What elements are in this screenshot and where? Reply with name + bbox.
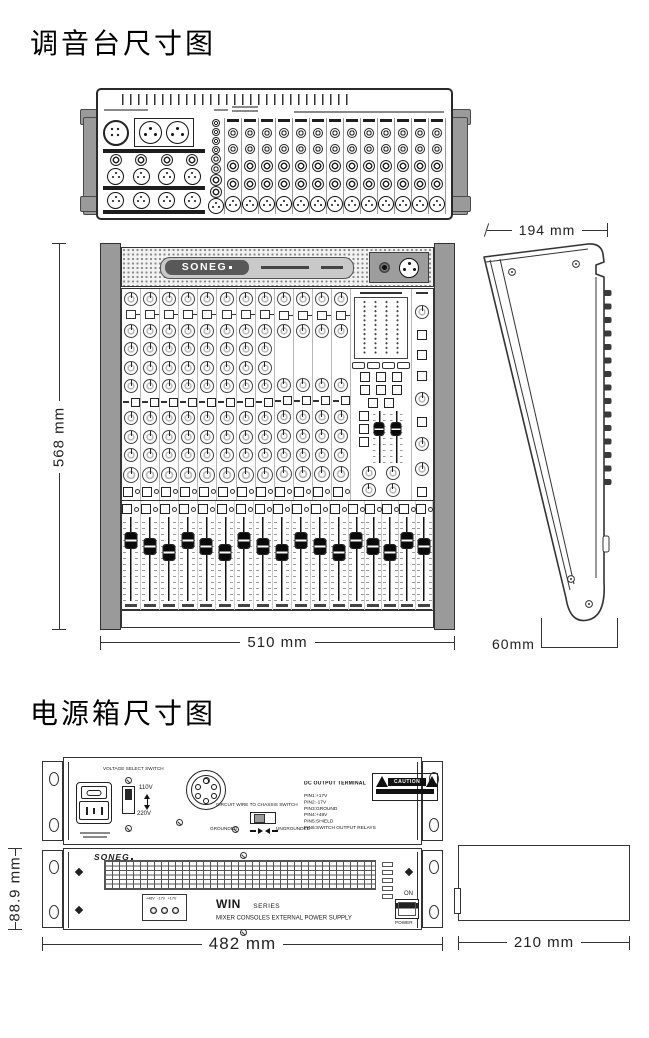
rear-connector-column bbox=[225, 118, 242, 214]
solo-led bbox=[153, 507, 158, 512]
fader-plate bbox=[122, 500, 433, 610]
mute-button bbox=[341, 396, 350, 405]
power-switch bbox=[395, 899, 419, 919]
knob-icon bbox=[199, 467, 215, 483]
pfl-button bbox=[275, 487, 285, 497]
solo-led bbox=[191, 507, 196, 512]
screw-icon bbox=[240, 852, 247, 859]
mute-button bbox=[169, 398, 178, 407]
knob-icon bbox=[362, 483, 376, 497]
dimension-psu-width: 482 mm bbox=[42, 934, 443, 954]
xlr-connector-icon bbox=[378, 196, 394, 212]
knob-icon bbox=[295, 466, 311, 482]
knob-icon bbox=[296, 292, 310, 306]
rear-connector-column bbox=[412, 118, 429, 214]
knob-icon bbox=[362, 466, 376, 480]
led-label-neg17v: -17V bbox=[157, 897, 165, 901]
jack-icon bbox=[432, 144, 442, 154]
jack-icon bbox=[381, 144, 391, 154]
xlr-connector-icon bbox=[276, 196, 292, 212]
figure-part bbox=[313, 400, 319, 402]
jack-icon bbox=[210, 186, 222, 198]
jack-icon bbox=[110, 154, 122, 166]
solo-led bbox=[323, 507, 328, 512]
knob-icon bbox=[334, 292, 348, 306]
knob-icon bbox=[239, 430, 253, 444]
knob-icon bbox=[315, 324, 329, 338]
peak-led bbox=[325, 489, 330, 494]
master-right-column bbox=[412, 289, 433, 500]
xlr-connector-icon bbox=[158, 192, 175, 209]
channel-fader bbox=[161, 517, 176, 601]
right-side-cheek bbox=[434, 243, 455, 630]
panel-edge-line bbox=[68, 762, 69, 840]
routing-button bbox=[360, 385, 370, 395]
knob-icon bbox=[220, 448, 234, 462]
rear-master-io-block bbox=[103, 118, 205, 214]
scribble-strip bbox=[418, 604, 430, 607]
knob-icon bbox=[143, 448, 157, 462]
pfl-row bbox=[218, 487, 235, 497]
figure-part bbox=[123, 401, 129, 403]
jack-icon bbox=[295, 178, 307, 190]
knob-icon bbox=[415, 392, 429, 406]
knob-icon bbox=[315, 410, 329, 424]
fader-cap bbox=[125, 533, 136, 548]
jack-icon bbox=[296, 144, 306, 154]
caution-text: CAUTION bbox=[388, 778, 426, 786]
knob-icon bbox=[124, 448, 138, 462]
jack-icon bbox=[415, 128, 425, 138]
rear-panel bbox=[96, 88, 453, 220]
led-label-48v: +48V bbox=[146, 897, 155, 901]
fader-cell bbox=[365, 501, 382, 610]
fader-cap bbox=[201, 539, 212, 554]
gain-pad-button bbox=[164, 310, 174, 319]
meter-button bbox=[367, 362, 380, 369]
knob-icon bbox=[161, 467, 177, 483]
knob-icon bbox=[200, 292, 214, 306]
pfl-button bbox=[199, 487, 209, 497]
fader-cap bbox=[163, 545, 174, 560]
knob-icon bbox=[296, 378, 310, 392]
solo-led bbox=[248, 507, 253, 512]
side-knob-bump bbox=[604, 290, 612, 296]
solo-button bbox=[217, 504, 227, 514]
knob-icon bbox=[162, 361, 176, 375]
fader-cell bbox=[273, 501, 292, 610]
dc-pin-list: PIN1:+17VPIN2:-17VPIN3:GROUNDPIN4:+48VPI… bbox=[304, 793, 376, 831]
knob-icon bbox=[143, 292, 157, 306]
knob-icon bbox=[124, 292, 138, 306]
gain-pad-button bbox=[145, 310, 155, 319]
pfl-button bbox=[333, 487, 343, 497]
psu-width-label: 482 mm bbox=[202, 934, 283, 954]
fader-cap bbox=[295, 533, 306, 548]
master-divider bbox=[360, 292, 402, 294]
assign-button bbox=[359, 424, 369, 434]
jack-icon bbox=[211, 164, 221, 174]
tray-dash bbox=[261, 266, 309, 269]
side-knob-bump bbox=[604, 317, 612, 323]
dimension-mixer-height: 568 mm bbox=[50, 243, 68, 630]
knob-icon bbox=[239, 411, 253, 425]
pfl-row bbox=[313, 487, 330, 497]
peak-led bbox=[211, 489, 216, 494]
chassis-switch-label: CIRCUIT WIRE TO CHASSIS SWITCH bbox=[216, 803, 298, 808]
fader-cap bbox=[385, 545, 396, 560]
solo-row bbox=[311, 504, 328, 514]
channel-strips bbox=[122, 289, 351, 500]
channel-fader bbox=[199, 517, 214, 601]
knob-icon bbox=[315, 448, 329, 462]
power-on-label: ON bbox=[404, 891, 413, 897]
xlr-connector-icon bbox=[242, 196, 258, 212]
top-vent-strip: SONEG bbox=[121, 247, 434, 287]
mute-button bbox=[245, 398, 254, 407]
solo-row bbox=[255, 504, 272, 514]
left-side-cheek bbox=[100, 243, 121, 630]
scribble-strip bbox=[144, 604, 156, 607]
jack-icon bbox=[346, 160, 358, 172]
screw-icon bbox=[176, 819, 183, 826]
fader-cell bbox=[198, 501, 217, 610]
jack-icon bbox=[330, 128, 340, 138]
voltage-arrow-icon bbox=[144, 794, 150, 810]
jack-icon bbox=[186, 154, 198, 166]
voltage-switch-label: VOLTAGE SELECT SWITCH bbox=[103, 767, 164, 772]
fader-cell bbox=[311, 501, 330, 610]
jack-icon bbox=[313, 144, 323, 154]
dimension-side-depth-bottom: 60mm bbox=[492, 618, 618, 648]
solo-row bbox=[330, 504, 347, 514]
knob-icon bbox=[162, 411, 176, 425]
jack-icon bbox=[346, 178, 358, 190]
jack-icon bbox=[312, 178, 324, 190]
gain-pad-button bbox=[298, 311, 308, 320]
knob-icon bbox=[124, 324, 138, 338]
mount-hole bbox=[49, 860, 59, 874]
scribble-strip bbox=[200, 604, 212, 607]
figure-part bbox=[333, 400, 339, 402]
scribble-strip bbox=[219, 604, 231, 607]
xlr-connector-icon bbox=[344, 196, 360, 212]
master-section bbox=[351, 289, 411, 500]
channel-strip bbox=[256, 289, 275, 500]
side-knob-bump bbox=[604, 398, 612, 404]
dc-terminal-heading: DC OUTPUT TERMINAL bbox=[304, 781, 380, 786]
mount-hole bbox=[49, 772, 59, 786]
gain-pad-button bbox=[317, 311, 327, 320]
assign-button bbox=[359, 437, 369, 447]
knob-icon bbox=[296, 324, 310, 338]
pfl-button bbox=[123, 487, 133, 497]
side-depth-bottom-label: 60mm bbox=[492, 636, 535, 652]
pan-row bbox=[256, 398, 273, 407]
pan-row bbox=[123, 398, 140, 407]
meter-button-row bbox=[352, 362, 410, 369]
knob-icon bbox=[124, 430, 138, 444]
pfl-row bbox=[275, 487, 292, 497]
led-icon bbox=[150, 907, 157, 914]
scribble-strip bbox=[314, 604, 326, 607]
xlr-connector-icon bbox=[225, 196, 241, 212]
xlr-connector-icon bbox=[395, 196, 411, 212]
knob-icon bbox=[258, 292, 272, 306]
knob-icon bbox=[334, 378, 348, 392]
fader-cap bbox=[333, 545, 344, 560]
fader-cell bbox=[122, 501, 141, 610]
armrest bbox=[121, 610, 434, 628]
channel-strip bbox=[294, 289, 313, 500]
solo-row bbox=[122, 504, 139, 514]
rear-connector-column bbox=[310, 118, 327, 214]
knob-icon bbox=[181, 448, 195, 462]
solo-button bbox=[236, 504, 246, 514]
figure-part bbox=[180, 401, 186, 403]
channel-fader bbox=[123, 517, 138, 601]
scribble-strip bbox=[163, 604, 175, 607]
peak-led bbox=[306, 489, 311, 494]
psu-side-view bbox=[458, 845, 630, 921]
fader-cell bbox=[330, 501, 349, 610]
jack-icon bbox=[398, 144, 408, 154]
solo-button bbox=[330, 504, 340, 514]
illegible-microtext bbox=[83, 836, 107, 838]
mixer-section-title: 调音台尺寸图 bbox=[30, 22, 216, 62]
scribble-strip bbox=[238, 604, 250, 607]
master-button bbox=[417, 417, 427, 427]
knob-icon bbox=[220, 324, 234, 338]
pan-row bbox=[161, 398, 178, 407]
meter-bridge bbox=[354, 297, 408, 359]
knob-icon bbox=[143, 342, 157, 356]
solo-button bbox=[179, 504, 189, 514]
mount-hole bbox=[429, 860, 439, 874]
psu-section-title: 电源箱尺寸图 bbox=[30, 692, 216, 732]
grounded-label: GROUNDED bbox=[210, 827, 237, 832]
side-knob-bump bbox=[604, 371, 612, 377]
channel-fader bbox=[331, 517, 346, 601]
xlr-connector-icon bbox=[107, 192, 124, 209]
psu-rear-view: VOLTAGE SELECT SWITCH 110V 220V CIRCUIT … bbox=[42, 757, 443, 845]
jack-icon bbox=[329, 160, 341, 172]
psu-front-view: SONEG +48V -17V +17V bbox=[42, 848, 443, 930]
figure-part bbox=[142, 401, 148, 403]
knob-icon bbox=[334, 410, 348, 424]
knob-icon bbox=[200, 324, 214, 338]
channel-fader bbox=[400, 517, 415, 601]
fader-cell bbox=[416, 501, 433, 610]
led-icon bbox=[161, 907, 168, 914]
figure-part bbox=[321, 343, 322, 373]
mute-button bbox=[207, 398, 216, 407]
control-surface bbox=[121, 288, 434, 610]
routing-button bbox=[392, 385, 402, 395]
jack-icon bbox=[398, 128, 408, 138]
jack-icon bbox=[295, 160, 307, 172]
rear-connector-column bbox=[259, 118, 276, 214]
knob-icon bbox=[124, 342, 138, 356]
knob-icon bbox=[296, 429, 310, 443]
pan-row bbox=[313, 396, 330, 405]
xlr-connector-icon bbox=[293, 196, 309, 212]
ground-arrows-icon bbox=[250, 828, 278, 834]
knob-icon bbox=[239, 448, 253, 462]
solo-row bbox=[416, 504, 433, 514]
led-indicator-panel: +48V -17V +17V bbox=[142, 894, 187, 921]
voltage-select-switch bbox=[122, 786, 135, 814]
jack-icon bbox=[244, 178, 256, 190]
solo-row bbox=[292, 504, 309, 514]
jack-icon bbox=[262, 128, 272, 138]
side-profile-drawing bbox=[470, 238, 645, 658]
pan-row bbox=[218, 398, 235, 407]
fader-cell bbox=[160, 501, 179, 610]
knob-icon bbox=[162, 292, 176, 306]
solo-row bbox=[236, 504, 253, 514]
side-knob-bump bbox=[604, 344, 612, 350]
channel-strip bbox=[141, 289, 160, 500]
routing-button bbox=[376, 372, 386, 382]
pfl-row bbox=[333, 487, 350, 497]
fader-cap bbox=[220, 545, 231, 560]
scribble-strip bbox=[384, 604, 396, 607]
solo-row bbox=[348, 504, 365, 514]
xlr-connector-icon bbox=[327, 196, 343, 212]
rear-connector-column bbox=[293, 118, 310, 214]
gain-pad-button bbox=[336, 311, 346, 320]
solo-button bbox=[198, 504, 208, 514]
peak-led bbox=[192, 489, 197, 494]
sub-fader bbox=[390, 411, 403, 463]
channel-fader bbox=[237, 517, 252, 601]
routing-button bbox=[376, 385, 386, 395]
pfl-row bbox=[294, 487, 311, 497]
xlr-connector-icon bbox=[259, 196, 275, 212]
knob-icon bbox=[143, 361, 157, 375]
mute-button bbox=[150, 398, 159, 407]
solo-button bbox=[311, 504, 321, 514]
column-label-bar bbox=[431, 119, 444, 122]
knob-icon bbox=[162, 448, 176, 462]
screw-icon bbox=[75, 906, 83, 914]
figure-part bbox=[256, 401, 262, 403]
brand-text: SONEG bbox=[182, 261, 227, 273]
voltage-110-label: 110V bbox=[139, 785, 153, 791]
solo-row bbox=[365, 504, 382, 514]
pfl-row bbox=[256, 487, 273, 497]
led-meter-column bbox=[384, 300, 389, 356]
gain-pad-button bbox=[202, 310, 212, 319]
jack-icon bbox=[211, 154, 221, 164]
fader-cap bbox=[314, 539, 325, 554]
jack-icon bbox=[245, 144, 255, 154]
solo-button bbox=[399, 504, 409, 514]
pan-row bbox=[180, 398, 197, 407]
knob-icon bbox=[181, 361, 195, 375]
channel-fader bbox=[142, 517, 157, 601]
knob-icon bbox=[334, 448, 348, 462]
rear-connector-column bbox=[242, 118, 259, 214]
knob-icon bbox=[258, 361, 272, 375]
psu-side-ear-edge bbox=[454, 888, 461, 914]
jack-icon bbox=[381, 128, 391, 138]
fader-cell bbox=[141, 501, 160, 610]
column-label-bar bbox=[414, 119, 427, 122]
xlr-connector-icon bbox=[184, 168, 201, 185]
pfl-row bbox=[237, 487, 254, 497]
mount-hole bbox=[49, 905, 59, 919]
peak-led bbox=[287, 489, 292, 494]
dimension-side-depth-top: 194 mm bbox=[486, 222, 608, 238]
rack-ear-left bbox=[42, 850, 63, 928]
figure-part bbox=[283, 343, 284, 373]
logo-tray: SONEG bbox=[160, 257, 354, 279]
jack-icon bbox=[432, 128, 442, 138]
jack-icon bbox=[279, 144, 289, 154]
knob-icon bbox=[334, 324, 348, 338]
solo-row bbox=[217, 504, 234, 514]
column-label-bar bbox=[346, 119, 359, 122]
knob-icon bbox=[181, 379, 195, 393]
solo-row bbox=[141, 504, 158, 514]
side-knob-bump bbox=[604, 439, 612, 445]
peak-led bbox=[268, 489, 273, 494]
column-label-bar bbox=[278, 119, 291, 122]
mute-button bbox=[302, 396, 311, 405]
solo-row bbox=[160, 504, 177, 514]
meter-button bbox=[382, 362, 395, 369]
pan-row bbox=[333, 396, 350, 405]
master-knob-grid bbox=[352, 466, 410, 497]
mixer-width-label: 510 mm bbox=[240, 634, 314, 651]
rear-right-handle-bottom bbox=[451, 196, 471, 212]
jack-icon bbox=[330, 144, 340, 154]
jack-icon bbox=[278, 178, 290, 190]
led-meter-column bbox=[362, 300, 367, 356]
headphone-and-xlr-box bbox=[369, 252, 429, 283]
channel-strip bbox=[179, 289, 198, 500]
rear-connector-column bbox=[208, 118, 225, 214]
knob-icon bbox=[415, 462, 429, 476]
jack-icon bbox=[380, 160, 392, 172]
fader-cap bbox=[144, 539, 155, 554]
solo-button bbox=[416, 504, 426, 514]
side-knob-bump bbox=[604, 385, 612, 391]
knob-icon bbox=[180, 467, 196, 483]
tray-dash bbox=[321, 266, 343, 269]
fader-cap bbox=[182, 533, 193, 548]
knob-icon bbox=[315, 292, 329, 306]
pfl-row bbox=[123, 487, 140, 497]
brand-badge: SONEG bbox=[165, 260, 249, 275]
solo-button bbox=[292, 504, 302, 514]
knob-icon bbox=[315, 429, 329, 443]
channel-fader bbox=[312, 517, 327, 601]
channel-strip bbox=[332, 289, 351, 500]
knob-icon bbox=[220, 342, 234, 356]
rear-vent-slots bbox=[122, 94, 350, 105]
fader-cap bbox=[258, 539, 269, 554]
jack-icon bbox=[364, 144, 374, 154]
knob-icon bbox=[238, 467, 254, 483]
dimension-psu-depth: 210 mm bbox=[458, 934, 630, 951]
fader-cap bbox=[375, 423, 384, 435]
jack-icon bbox=[228, 144, 238, 154]
rear-connector-column bbox=[361, 118, 378, 214]
pan-row bbox=[294, 396, 311, 405]
